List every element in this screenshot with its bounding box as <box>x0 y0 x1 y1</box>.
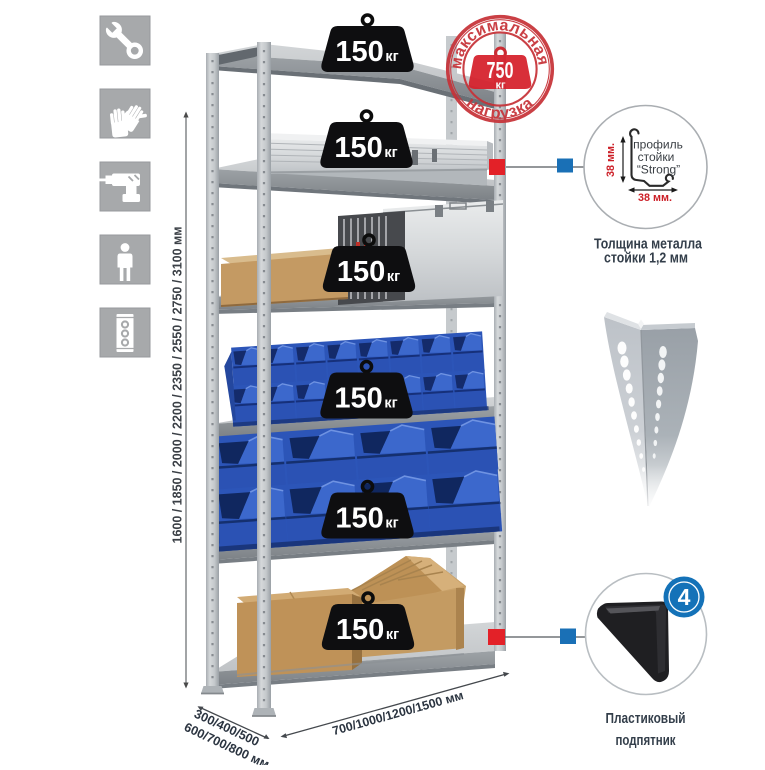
svg-text:подпятник: подпятник <box>616 732 676 749</box>
svg-text:38 мм.: 38 мм. <box>638 192 672 204</box>
svg-text:1600 / 1850 / 2000 / 2200 / 23: 1600 / 1850 / 2000 / 2200 / 2350 / 2550 … <box>170 227 185 544</box>
svg-text:стойки 1,2 мм: стойки 1,2 мм <box>604 251 688 267</box>
svg-text:кг: кг <box>495 80 506 92</box>
svg-text:Пластиковый: Пластиковый <box>606 710 686 727</box>
svg-text:38 мм.: 38 мм. <box>605 143 617 177</box>
svg-text:4: 4 <box>678 584 691 610</box>
svg-text:“Strong”: “Strong” <box>637 163 680 177</box>
